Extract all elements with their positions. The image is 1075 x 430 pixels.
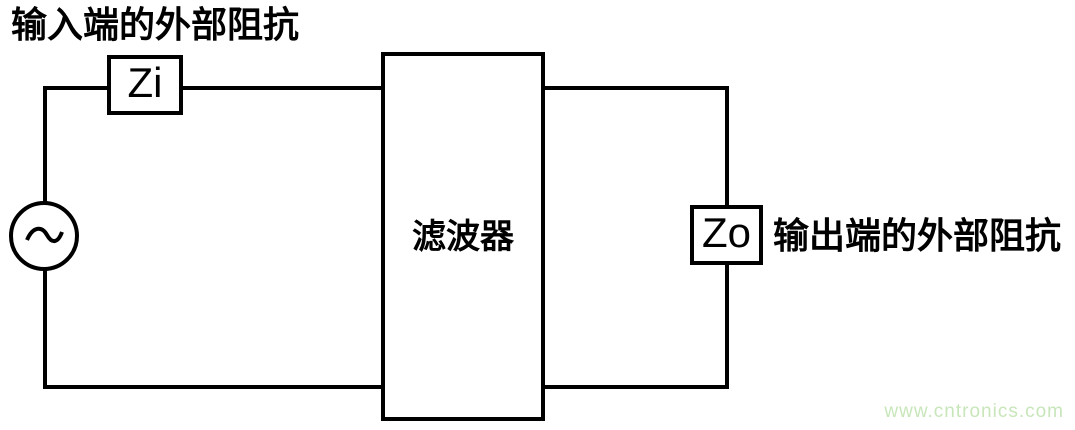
filter-label: 滤波器 [412, 220, 514, 254]
input-impedance-box: Zi [107, 55, 183, 115]
circuit-diagram: Zi 滤波器 Zo 输入端的外部阻抗 输出端的外部阻抗 www.cntronic… [0, 0, 1075, 430]
input-impedance-caption: 输入端的外部阻抗 [11, 7, 299, 43]
output-impedance-caption: 输出端的外部阻抗 [773, 218, 1061, 254]
filter-box: 滤波器 [381, 52, 545, 421]
input-impedance-label: Zi [128, 62, 163, 108]
output-impedance-box: Zo [690, 205, 763, 265]
watermark: www.cntronics.com [884, 401, 1064, 423]
ac-source-icon [11, 203, 77, 269]
output-impedance-label: Zo [702, 212, 751, 258]
